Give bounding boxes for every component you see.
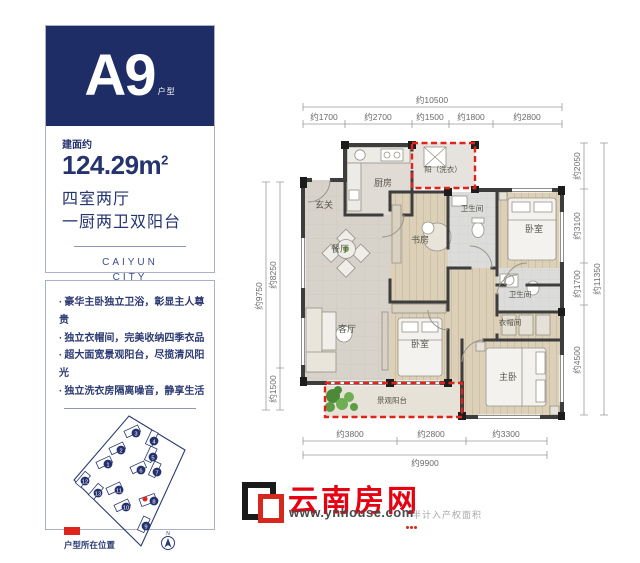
feature-item: 超大面宽景观阳台，尽揽清风阳光 — [59, 347, 208, 383]
room-label-cloak: 衣帽间 — [499, 317, 522, 327]
room-label-bed1: 卧室 — [525, 223, 543, 234]
floor-plan: 玄关 厨房 阳（洗衣） 餐厅 书房 卫生间 卧室 客厅 卧室 卫生间 衣帽间 主… — [240, 82, 640, 482]
svg-text:N: N — [166, 531, 170, 537]
svg-text:2: 2 — [119, 448, 122, 454]
unit-type-line1: 四室两厅 — [62, 188, 198, 211]
room-label-laundry: 阳（洗衣） — [424, 164, 462, 174]
svg-text:9: 9 — [144, 524, 147, 530]
legend-swatch — [64, 527, 80, 535]
dim-top-3: 约1500 — [416, 112, 444, 122]
compass-icon: N — [162, 531, 175, 550]
svg-text:1: 1 — [106, 462, 109, 468]
dim-top-5: 约2800 — [513, 112, 541, 122]
room-label-balcony: 景观阳台 — [377, 395, 407, 405]
room-label-living: 客厅 — [338, 323, 356, 334]
dim-right-3: 约1700 — [572, 270, 582, 298]
dim-right-total: 约11350 — [592, 263, 602, 295]
svg-text:5: 5 — [151, 455, 154, 461]
dim-bottom-total: 约9900 — [411, 458, 439, 468]
watermark-url: www.ynhouse.com — [289, 505, 414, 520]
svg-text:12: 12 — [82, 479, 88, 485]
site-watermark: 云南房网 www.ynhouse.com 半计入产权面积 — [240, 476, 630, 532]
dim-top-total: 约10500 — [416, 95, 448, 105]
unit-code-header: A9 户型 — [46, 26, 214, 126]
dim-bottom-2: 约2800 — [417, 429, 445, 439]
dim-top-4: 约1800 — [457, 112, 485, 122]
dim-right-2: 约3100 — [572, 212, 582, 240]
area-label: 建面约 — [62, 136, 198, 151]
feature-item: 豪华主卧独立卫浴，彰显主人尊贵 — [59, 294, 208, 330]
svg-text:8: 8 — [152, 499, 155, 505]
feature-item: 独立洗衣房隔离噪音，静享生活 — [59, 383, 208, 401]
feature-item: 独立衣帽间，完美收纳四季衣品 — [59, 330, 208, 348]
unit-code: A9 — [84, 47, 154, 105]
legend-label: 户型所在位置 — [63, 540, 116, 550]
room-label-kitchen: 厨房 — [374, 177, 392, 188]
unit-info-card: A9 户型 建面约 124.29m2 四室两厅 一厨两卫双阳台 CAIYUN C… — [45, 25, 215, 273]
unit-location-dot — [143, 496, 148, 501]
room-label-study: 书房 — [411, 234, 429, 245]
dim-right-4: 约4500 — [572, 346, 582, 374]
dim-bottom-1: 约3800 — [336, 429, 364, 439]
svg-text:3: 3 — [134, 431, 137, 437]
feature-list: 豪华主卧独立卫浴，彰显主人尊贵 独立衣帽间，完美收纳四季衣品 超大面宽景观阳台，… — [59, 294, 208, 401]
room-label-dining: 餐厅 — [331, 243, 349, 254]
ynhouse-logo-icon — [242, 482, 292, 528]
room-label-bath1: 卫生间 — [461, 203, 484, 213]
svg-text:7: 7 — [155, 470, 158, 476]
area-value: 124.29m2 — [62, 151, 198, 181]
dim-top-1: 约1700 — [310, 112, 338, 122]
dim-left-total: 约9750 — [254, 282, 264, 310]
svg-text:11: 11 — [116, 488, 122, 494]
room-label-entry: 玄关 — [315, 199, 333, 210]
card-divider — [74, 246, 186, 247]
dim-right-1: 约2050 — [572, 152, 582, 180]
site-plan-map: 1 2 3 4 5 6 7 8 9 10 11 12 13 户型所在位置 N — [46, 411, 214, 563]
dim-bottom-3: 约3300 — [492, 429, 520, 439]
room-label-master: 主卧 — [499, 371, 517, 382]
card-divider — [64, 408, 196, 409]
svg-text:10: 10 — [123, 505, 129, 511]
svg-text:6: 6 — [139, 468, 142, 474]
dim-left-2: 约1500 — [268, 375, 278, 403]
svg-text:13: 13 — [95, 491, 101, 497]
dim-top-2: 约2700 — [364, 112, 392, 122]
watermark-note: 半计入产权面积 — [412, 508, 482, 521]
room-label-bed2: 卧室 — [411, 338, 429, 349]
dim-left-1: 约8250 — [268, 261, 278, 289]
room-label-bath2: 卫生间 — [509, 289, 532, 299]
unit-code-tag: 户型 — [158, 86, 176, 97]
features-location-card: 豪华主卧独立卫浴，彰显主人尊贵 独立衣帽间，完美收纳四季衣品 超大面宽景观阳台，… — [45, 280, 215, 530]
unit-type-line2: 一厨两卫双阳台 — [62, 211, 198, 234]
